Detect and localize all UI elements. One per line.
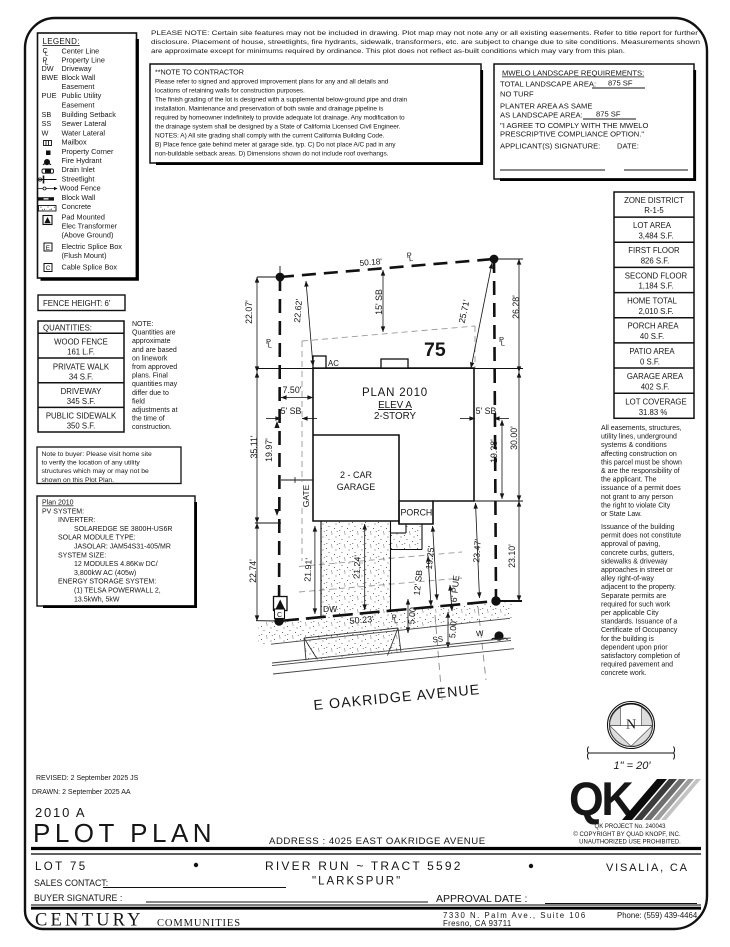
svg-text:C: C — [46, 265, 51, 272]
svg-text:W: W — [476, 629, 485, 639]
svg-text:Quantities are: Quantities are — [132, 330, 176, 337]
svg-text:approval of paving,: approval of paving, — [601, 541, 660, 548]
svg-text:40 S.F.: 40 S.F. — [640, 332, 664, 341]
svg-text:SB: SB — [42, 110, 52, 119]
svg-text:for the building is: for the building is — [601, 636, 654, 643]
svg-text:C: C — [277, 612, 282, 619]
svg-text:PUE: PUE — [42, 91, 57, 100]
svg-text:Elec Transformer: Elec Transformer — [62, 222, 118, 231]
svg-text:Cable Splice Box: Cable Splice Box — [62, 263, 118, 272]
svg-text:APPLICANT(S) SIGNATURE:: APPLICANT(S) SIGNATURE: — [500, 142, 600, 151]
svg-text:to verify the location of any: to verify the location of any utility — [42, 460, 141, 467]
svg-text:50.18': 50.18' — [359, 256, 383, 268]
svg-text:CENTURY: CENTURY — [35, 911, 144, 931]
svg-text:the time of: the time of — [132, 416, 165, 423]
svg-text:PORCH AREA: PORCH AREA — [627, 322, 679, 331]
svg-text:differ due to: differ due to — [132, 390, 169, 397]
svg-text:Block Wall: Block Wall — [62, 73, 96, 82]
svg-text:the right to violate City: the right to violate City — [601, 502, 671, 509]
svg-text:per applicable City: per applicable City — [601, 610, 659, 617]
svg-text:disclosure. Placement of hous: disclosure. Placement of house, streetli… — [151, 39, 700, 46]
svg-text:DW: DW — [323, 604, 337, 614]
svg-text:not grant to any person: not grant to any person — [601, 494, 673, 501]
svg-text:19.38': 19.38' — [489, 439, 499, 463]
svg-text:AS LANDSCAPE AREA:: AS LANDSCAPE AREA: — [500, 111, 583, 120]
svg-text:SS: SS — [42, 119, 52, 128]
svg-text:ZONE DISTRICT: ZONE DISTRICT — [624, 196, 684, 205]
svg-text:plans. Final: plans. Final — [132, 373, 168, 380]
svg-text:FIRST FLOOR: FIRST FLOOR — [628, 246, 680, 255]
svg-text:GARAGE AREA: GARAGE AREA — [627, 372, 684, 381]
svg-text:DW: DW — [42, 64, 54, 73]
svg-text:PLEASE NOTE: Certain site fea: PLEASE NOTE: Certain site features may n… — [151, 30, 699, 37]
svg-text:shown on this Plot Plan.: shown on this Plot Plan. — [42, 477, 115, 484]
svg-text:Mailbox: Mailbox — [62, 138, 87, 147]
svg-text:REVISED: 2 September 2025 JS: REVISED: 2 September 2025 JS — [36, 775, 139, 782]
svg-text:SOLAREDGE SE 3800H-US6R: SOLAREDGE SE 3800H-US6R — [74, 526, 172, 533]
svg-text:B) Place fence gate behind met: B) Place fence gate behind meter at gara… — [155, 142, 396, 149]
svg-text:PRESCRIPTIVE COMPLIANCE OPTION: PRESCRIPTIVE COMPLIANCE OPTION." — [500, 130, 644, 139]
svg-text:APPROVAL DATE :: APPROVAL DATE : — [436, 893, 527, 905]
svg-text:Issuance of the building: Issuance of the building — [601, 524, 675, 531]
svg-text:installation. Maintenance and: installation. Maintenance and preservati… — [155, 106, 384, 113]
svg-text:7.50': 7.50' — [283, 385, 302, 395]
svg-text:2,010 S.F.: 2,010 S.F. — [638, 307, 673, 316]
svg-text:on linework: on linework — [132, 355, 168, 362]
svg-text:12' SB: 12' SB — [412, 569, 425, 596]
svg-text:Please refer to signed and app: Please refer to signed and approved impr… — [155, 79, 389, 86]
svg-text:Electric Splice Box: Electric Splice Box — [62, 242, 123, 251]
svg-text:30.00': 30.00' — [509, 426, 519, 450]
svg-text:Public Utility: Public Utility — [62, 91, 102, 100]
svg-text:and are based: and are based — [132, 347, 177, 354]
svg-text:satisfactory completion of: satisfactory completion of — [601, 653, 680, 660]
svg-text:ENERGY STORAGE SYSTEM:: ENERGY STORAGE SYSTEM: — [58, 579, 156, 586]
svg-text:quantities may: quantities may — [132, 381, 178, 388]
svg-text:the drainage system shall be d: the drainage system shall be designed by… — [155, 124, 401, 131]
svg-text:are approximate except for min: are approximate except for minimums requ… — [151, 48, 625, 55]
svg-text:2-STORY: 2-STORY — [374, 411, 417, 422]
svg-text:50.23': 50.23' — [349, 614, 374, 626]
svg-text:QK PROJECT No. 240043: QK PROJECT No. 240043 — [595, 824, 667, 830]
svg-text:N: N — [626, 718, 636, 733]
svg-text:FENCE HEIGHT: 6': FENCE HEIGHT: 6' — [43, 299, 111, 308]
svg-text:Separate permits are: Separate permits are — [601, 593, 666, 600]
svg-text:GARAGE: GARAGE — [337, 482, 376, 492]
svg-text:Pad Mounted: Pad Mounted — [62, 213, 105, 222]
svg-text:construction.: construction. — [132, 424, 172, 431]
svg-text:(Flush Mount): (Flush Mount) — [62, 251, 107, 260]
svg-text:standards. Issuance of a: standards. Issuance of a — [601, 619, 677, 626]
svg-text:Streetlight: Streetlight — [62, 175, 95, 184]
svg-text:PLOT PLAN: PLOT PLAN — [33, 818, 216, 848]
svg-text:PORCH: PORCH — [401, 508, 433, 518]
svg-text:161 L.F.: 161 L.F. — [67, 348, 95, 357]
svg-text:concrete curbs, gutters,: concrete curbs, gutters, — [601, 550, 674, 557]
svg-text:Center Line: Center Line — [62, 47, 100, 56]
svg-text:NOTE:: NOTE: — [132, 321, 153, 328]
svg-text:E: E — [46, 245, 51, 252]
svg-text:sidewalks & driveway: sidewalks & driveway — [601, 558, 668, 565]
svg-text:Wood Fence: Wood Fence — [60, 184, 101, 193]
svg-text:Block Wall: Block Wall — [62, 193, 96, 202]
svg-text:& are the responsibility of: & are the responsibility of — [601, 468, 680, 475]
svg-text:1" = 20': 1" = 20' — [614, 760, 652, 772]
svg-text:350 S.F.: 350 S.F. — [67, 422, 96, 431]
svg-text:QUANTITIES:: QUANTITIES: — [43, 324, 92, 333]
svg-text:E OAKRIDGE AVENUE: E OAKRIDGE AVENUE — [313, 682, 481, 714]
svg-text:Phone: (559) 439-4464: Phone: (559) 439-4464 — [617, 911, 698, 920]
svg-text:L: L — [393, 616, 398, 625]
svg-text:26.28': 26.28' — [511, 295, 521, 319]
svg-text:6' PUE: 6' PUE — [449, 575, 462, 603]
svg-text:concrete work.: concrete work. — [601, 670, 647, 677]
svg-text:12 MODULES 4.86Kw DC/: 12 MODULES 4.86Kw DC/ — [74, 561, 158, 568]
svg-text:15' SB: 15' SB — [374, 289, 384, 315]
svg-text:L: L — [268, 340, 272, 349]
svg-text:19.25': 19.25' — [424, 545, 436, 570]
svg-text:ELEV A: ELEV A — [378, 400, 412, 411]
svg-text:NO TURF: NO TURF — [500, 90, 534, 99]
svg-text:SYSTEM SIZE:: SYSTEM SIZE: — [58, 552, 106, 559]
svg-text:non-buildable setback areas.: non-buildable setback areas. D) Dimensio… — [155, 151, 389, 158]
svg-text:utility lines, underground: utility lines, underground — [601, 434, 677, 441]
svg-text:(Above Ground): (Above Ground) — [62, 231, 114, 240]
svg-text:QK: QK — [569, 773, 633, 825]
svg-text:DATE:: DATE: — [617, 142, 639, 151]
svg-text:INVERTER:: INVERTER: — [58, 517, 95, 524]
svg-text:TOTAL LANDSCAPE AREA:: TOTAL LANDSCAPE AREA: — [500, 80, 596, 89]
svg-text:875 SF: 875 SF — [596, 110, 621, 119]
svg-text:**NOTE TO CONTRACTOR: **NOTE TO CONTRACTOR — [155, 68, 244, 77]
svg-text:locations of retaining walls f: locations of retaining walls for constru… — [155, 88, 305, 95]
svg-text:Building Setback: Building Setback — [62, 110, 117, 119]
svg-text:MWELO LANDSCAPE REQUIREMENTS:: MWELO LANDSCAPE REQUIREMENTS: — [502, 69, 644, 78]
svg-text:21.91': 21.91' — [302, 557, 313, 582]
svg-text:BWE: BWE — [42, 73, 59, 82]
svg-text:Driveway: Driveway — [62, 64, 92, 73]
svg-text:R-1-5: R-1-5 — [644, 206, 664, 215]
svg-text:5' SB: 5' SB — [476, 406, 497, 416]
svg-text:Certificate of Occupancy: Certificate of Occupancy — [601, 627, 678, 634]
svg-text:issuance of a permit does: issuance of a permit does — [601, 485, 681, 492]
svg-text:the applicant. The: the applicant. The — [601, 477, 657, 484]
svg-text:22.74': 22.74' — [248, 559, 258, 583]
svg-text:Note to buyer: Please visit ho: Note to buyer: Please visit home site — [42, 451, 153, 458]
svg-text:Property Corner: Property Corner — [62, 147, 114, 156]
svg-text:826 S.F.: 826 S.F. — [641, 257, 670, 266]
svg-text:required for such work: required for such work — [601, 601, 671, 608]
svg-text:34 S.F.: 34 S.F. — [69, 372, 93, 381]
svg-text:LOT 75: LOT 75 — [35, 861, 88, 873]
svg-text:35.11': 35.11' — [249, 435, 259, 458]
svg-text:AC: AC — [328, 359, 339, 368]
svg-text:Fire Hydrant: Fire Hydrant — [62, 156, 102, 165]
svg-text:3,484 S.F.: 3,484 S.F. — [638, 232, 673, 241]
svg-text:from approved: from approved — [132, 364, 177, 371]
svg-text:RIVER RUN ~ TRACT 5592: RIVER RUN ~ TRACT 5592 — [265, 859, 463, 873]
svg-text:or State Law.: or State Law. — [601, 511, 642, 518]
svg-text:19.97': 19.97' — [264, 438, 274, 462]
svg-text:LEGEND:: LEGEND: — [43, 37, 80, 46]
svg-text:W: W — [42, 129, 49, 138]
svg-text:required pavement and: required pavement and — [601, 662, 673, 669]
svg-text:Fresno, CA 93711: Fresno, CA 93711 — [443, 919, 512, 928]
svg-text:31.83 %: 31.83 % — [639, 408, 668, 417]
svg-text:2 - CAR: 2 - CAR — [340, 470, 373, 480]
svg-text:All easements, structures,: All easements, structures, — [601, 425, 682, 432]
svg-text:22.07': 22.07' — [244, 300, 254, 324]
svg-text:SOLAR MODULE TYPE:: SOLAR MODULE TYPE: — [58, 535, 136, 542]
svg-text:345 S.F.: 345 S.F. — [67, 397, 96, 406]
svg-text:3,800kW AC (405w): 3,800kW AC (405w) — [74, 570, 136, 577]
svg-text:Water Lateral: Water Lateral — [62, 129, 106, 138]
svg-text:SS: SS — [432, 635, 443, 645]
svg-text:13.5kWh, 5kW: 13.5kWh, 5kW — [74, 596, 120, 603]
svg-text:"LARKSPUR": "LARKSPUR" — [312, 876, 402, 888]
svg-text:this parcel must be shown: this parcel must be shown — [601, 459, 682, 466]
svg-text:ADDRESS : 4025 EAST OAKRIDGE: ADDRESS : 4025 EAST OAKRIDGE AVENUE — [269, 836, 486, 847]
svg-text:© COPYRIGHT BY QUAD KNOPF, I: © COPYRIGHT BY QUAD KNOPF, INC. — [573, 831, 681, 838]
svg-text:required by homeowner indefini: required by homeowner indefinitely to pr… — [155, 115, 405, 122]
svg-text:NOTES: A) All site grading sh: NOTES: A) All site grading shall comply … — [155, 133, 385, 140]
svg-text:VISALIA, CA: VISALIA, CA — [606, 862, 689, 874]
svg-text:dependent upon prior: dependent upon prior — [601, 644, 668, 651]
svg-text:PUBLIC SIDEWALK: PUBLIC SIDEWALK — [46, 412, 117, 421]
svg-text:HOME TOTAL: HOME TOTAL — [627, 297, 677, 306]
svg-text:25.71': 25.71' — [457, 298, 472, 324]
svg-text:PATIO AREA: PATIO AREA — [629, 347, 675, 356]
svg-text:affecting construction on: affecting construction on — [601, 451, 677, 458]
svg-text:5' SB: 5' SB — [281, 406, 302, 416]
svg-text:Sewer Lateral: Sewer Lateral — [62, 119, 107, 128]
svg-text:(1) TELSA POWERWALL 2,: (1) TELSA POWERWALL 2, — [74, 588, 161, 595]
svg-text:PV SYSTEM:: PV SYSTEM: — [42, 508, 84, 515]
svg-text:adjustments at: adjustments at — [132, 407, 178, 414]
svg-text:23.47': 23.47' — [471, 538, 483, 563]
svg-text:402 S.F.: 402 S.F. — [641, 383, 670, 392]
svg-text:UNAUTHORIZED USE PROHIBITED.: UNAUTHORIZED USE PROHIBITED. — [579, 840, 681, 846]
svg-text:approaches in street or: approaches in street or — [601, 567, 673, 574]
svg-text:PLANTER AREA AS SAME: PLANTER AREA AS SAME — [500, 102, 592, 111]
svg-text:PRIVATE WALK: PRIVATE WALK — [53, 363, 110, 372]
svg-text:permit does not constitute: permit does not constitute — [601, 533, 681, 540]
svg-text:structures which may or may no: structures which may or may not be — [42, 468, 149, 475]
svg-text:PLAN 2010: PLAN 2010 — [362, 387, 428, 399]
svg-text:SECOND FLOOR: SECOND FLOOR — [625, 272, 688, 281]
svg-text:21.24': 21.24' — [351, 554, 362, 579]
svg-text:The finish grading of the lot: The finish grading of the lot is designe… — [155, 97, 408, 104]
svg-text:Easement: Easement — [62, 82, 95, 91]
svg-text:LOT AREA: LOT AREA — [633, 221, 672, 230]
svg-text:alley right-of-way: alley right-of-way — [601, 576, 654, 583]
svg-text:75: 75 — [424, 339, 446, 361]
svg-text:Drain Inlet: Drain Inlet — [62, 165, 95, 174]
svg-text:GATE: GATE — [301, 484, 311, 507]
svg-text:5.00': 5.00' — [447, 619, 459, 639]
svg-text:systems & conditions: systems & conditions — [601, 442, 667, 449]
svg-text:L: L — [408, 254, 413, 263]
svg-text:5.00: 5.00 — [406, 607, 417, 625]
svg-text:DRIVEWAY: DRIVEWAY — [61, 387, 103, 396]
svg-text:BUYER SIGNATURE :: BUYER SIGNATURE : — [34, 893, 122, 903]
svg-text:Plan 2010: Plan 2010 — [42, 500, 74, 507]
svg-text:DRAWN: 2 September 2025 AA: DRAWN: 2 September 2025 AA — [32, 789, 131, 796]
svg-text:875 SF: 875 SF — [608, 79, 633, 88]
svg-text:adjacent to the property.: adjacent to the property. — [601, 584, 676, 591]
svg-text:0 S.F.: 0 S.F. — [640, 358, 660, 367]
svg-text:SALES CONTACT:: SALES CONTACT: — [34, 878, 108, 888]
svg-text:WOOD FENCE: WOOD FENCE — [54, 338, 108, 347]
svg-text:L: L — [501, 338, 505, 347]
svg-text:Easement: Easement — [62, 101, 95, 110]
svg-text:JASOLAR: JAM54S31-405/MR: JASOLAR: JAM54S31-405/MR — [74, 544, 171, 551]
svg-text:COMMUNITIES: COMMUNITIES — [157, 918, 241, 929]
svg-text:23.10': 23.10' — [507, 544, 517, 568]
svg-text:LOT COVERAGE: LOT COVERAGE — [625, 398, 686, 407]
svg-text:Concrete: Concrete — [62, 202, 92, 211]
svg-text:22.62': 22.62' — [292, 298, 304, 323]
svg-text:field: field — [132, 398, 145, 405]
svg-text:1,184 S.F.: 1,184 S.F. — [638, 282, 673, 291]
svg-text:approximate: approximate — [132, 338, 171, 345]
